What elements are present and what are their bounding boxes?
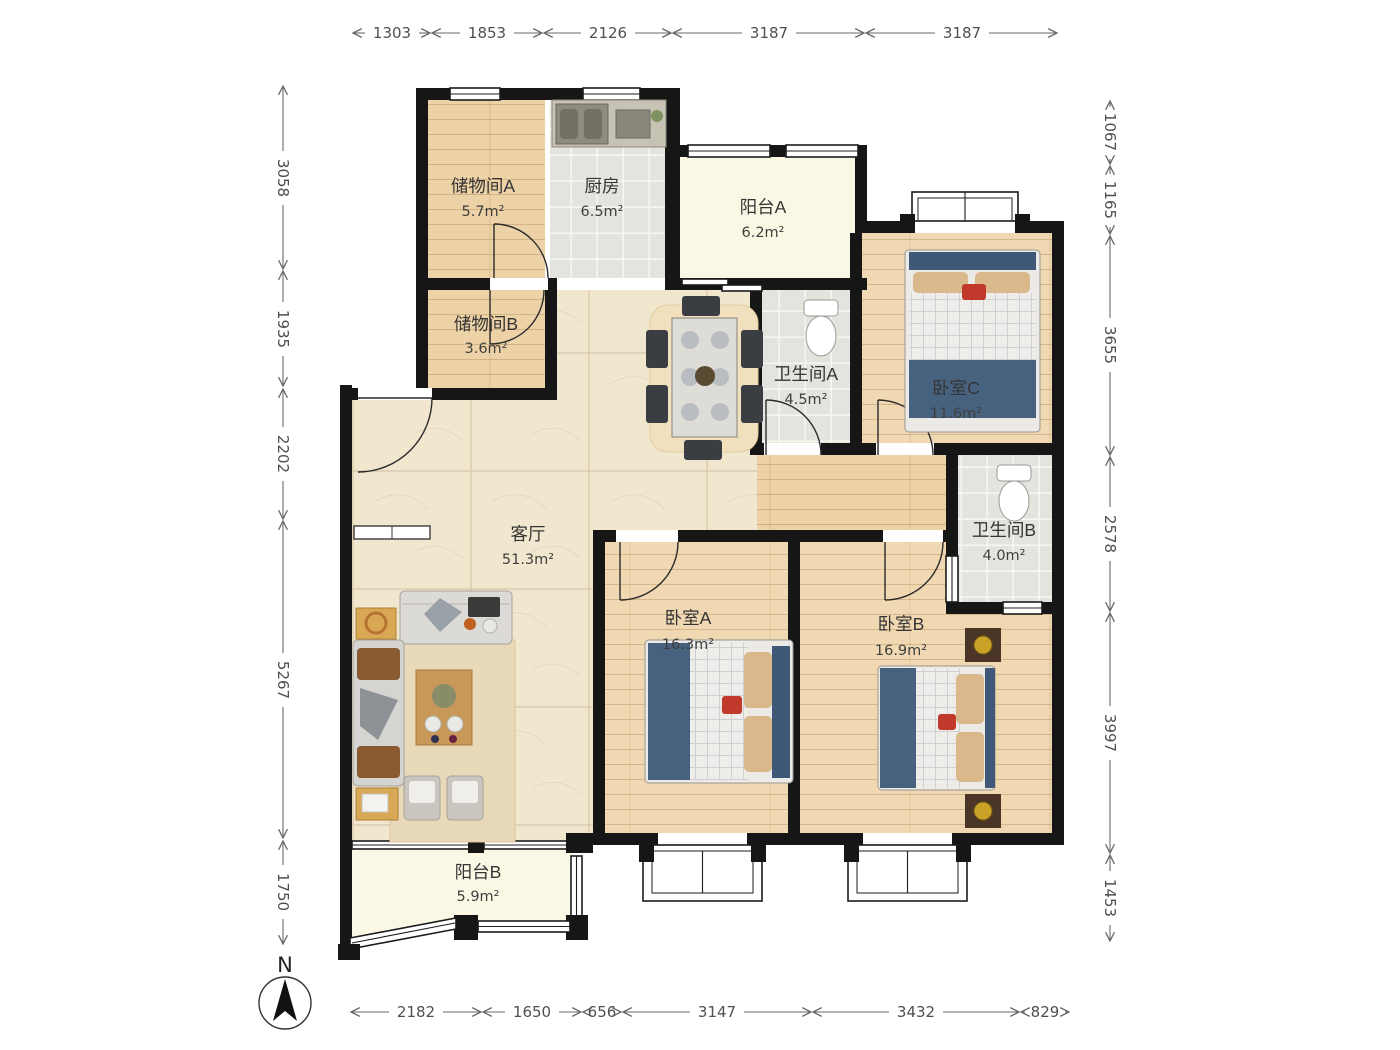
- floor-corridor-marble-texture: [605, 455, 757, 530]
- dimension-bottom: 2182 1650 656 3147 3432 829: [351, 1003, 1069, 1021]
- label-kitchen: 厨房: [585, 176, 620, 196]
- dim-bottom-3: 3147: [698, 1003, 736, 1021]
- label-bedroom-c: 卧室C: [932, 378, 980, 398]
- dining-chair: [646, 385, 668, 423]
- toilet-bath-b: [997, 465, 1031, 521]
- dim-top-1: 1853: [468, 24, 506, 42]
- opening-bedroom-c: [876, 443, 934, 455]
- label-bedroom-a: 卧室A: [665, 608, 712, 628]
- dimension-left: 3058 1935 2202 5267 1750: [274, 86, 292, 944]
- wall-left-outer: [340, 385, 352, 845]
- area-storage-a: 5.7m²: [462, 204, 505, 220]
- bay-window-bedroom-a: [639, 833, 766, 901]
- dining-set: [646, 296, 763, 460]
- wall-living-bedroom-a: [593, 530, 605, 845]
- dim-right-3: 2578: [1101, 515, 1119, 553]
- dim-bottom-1: 1650: [513, 1003, 551, 1021]
- compass: N: [259, 953, 311, 1029]
- entry-console: [354, 526, 430, 539]
- area-bath-b: 4.0m²: [983, 548, 1026, 564]
- label-storage-a: 储物间A: [451, 176, 515, 196]
- dim-right-2: 3655: [1101, 326, 1119, 364]
- sofa-tray: [468, 597, 500, 617]
- dim-bottom-5: 829: [1031, 1003, 1060, 1021]
- floor-storage-b-texture: [428, 290, 545, 390]
- wall-bedrooms-bottom: [570, 833, 1064, 845]
- toilet-bath-a: [804, 300, 838, 356]
- wall-storage-left: [416, 88, 428, 400]
- wall-storage-b-right: [545, 278, 557, 400]
- dim-top-0: 1303: [373, 24, 411, 42]
- bay-window-bedroom-b: [844, 833, 971, 901]
- dim-right-5: 1453: [1101, 879, 1119, 917]
- compass-north-label: N: [277, 953, 293, 977]
- label-bedroom-b: 卧室B: [878, 614, 925, 634]
- dimension-top: 1303 1853 2126 3187 3187: [353, 24, 1057, 42]
- dimension-right: 1067 1165 3655 2578 3997 1453: [1101, 101, 1119, 941]
- window-balcony-a-1: [688, 145, 770, 157]
- dim-bottom-4: 3432: [897, 1003, 935, 1021]
- dim-left-1: 1935: [274, 310, 292, 348]
- opening-storage-doors: [490, 278, 548, 290]
- label-bath-a: 卫生间A: [774, 364, 838, 384]
- dining-chair: [646, 330, 668, 368]
- area-bedroom-c: 11.6m²: [930, 406, 982, 422]
- window-kitchen: [583, 88, 640, 100]
- dim-left-2: 2202: [274, 435, 292, 473]
- area-bedroom-a: 16.3m²: [662, 637, 714, 653]
- dim-left-3: 5267: [274, 661, 292, 699]
- area-living: 51.3m²: [502, 552, 554, 568]
- dim-right-4: 3997: [1101, 714, 1119, 752]
- area-kitchen: 6.5m²: [581, 204, 624, 220]
- window-storage-a: [450, 88, 500, 100]
- label-living: 客厅: [511, 524, 546, 544]
- dining-chair: [741, 330, 763, 368]
- bed-b-accent: [938, 714, 956, 730]
- label-bath-b: 卫生间B: [972, 520, 1036, 540]
- bay-window-bedroom-c: [900, 192, 1030, 233]
- bed-a-accent: [722, 696, 742, 714]
- dining-centerpiece: [695, 366, 715, 386]
- dim-top-3: 3187: [750, 24, 788, 42]
- dim-bottom-2: 656: [588, 1003, 617, 1021]
- dim-bottom-0: 2182: [397, 1003, 435, 1021]
- dining-chair: [741, 385, 763, 423]
- dim-right-0: 1067: [1101, 113, 1119, 151]
- floorplan-svg: 储物间A 5.7m² 厨房 6.5m² 阳台A 6.2m² 储物间B 3.6m²…: [0, 0, 1400, 1050]
- wall-bath-a-bedc: [850, 233, 862, 455]
- dim-left-4: 1750: [274, 873, 292, 911]
- dim-top-2: 2126: [589, 24, 627, 42]
- dim-top-4: 3187: [943, 24, 981, 42]
- sofa-cushion: [357, 648, 400, 680]
- door-threshold-bath-b: [1003, 602, 1042, 614]
- sink-bowl-2: [584, 109, 602, 139]
- area-balcony-a: 6.2m²: [742, 225, 785, 241]
- bed-bedroom-a: [645, 640, 793, 783]
- window-bath-b: [946, 556, 958, 602]
- dim-left-0: 3058: [274, 159, 292, 197]
- opening-kitchen: [557, 278, 665, 290]
- post-balcony-b-right-top: [566, 833, 593, 853]
- area-bedroom-b: 16.9m²: [875, 643, 927, 659]
- floorplan-canvas: 储物间A 5.7m² 厨房 6.5m² 阳台A 6.2m² 储物间B 3.6m²…: [0, 0, 1400, 1050]
- floor-balcony-a: [677, 157, 855, 278]
- sink-bowl-1: [560, 109, 578, 139]
- kitchen-plant: [651, 110, 663, 122]
- opening-bedroom-b: [883, 530, 943, 542]
- compass-needle-icon: [273, 979, 297, 1021]
- wall-kitchen-right: [665, 100, 680, 290]
- floor-corridor-wood-texture: [757, 455, 946, 530]
- dining-chair: [682, 296, 720, 316]
- bed-c-accent: [962, 284, 986, 300]
- opening-bedroom-a: [616, 530, 678, 542]
- dining-chair: [684, 440, 722, 460]
- sofa-cushion: [357, 746, 400, 778]
- area-bath-a: 4.5m²: [785, 392, 828, 408]
- wall-right-outer: [1052, 221, 1064, 845]
- label-balcony-a: 阳台A: [740, 197, 787, 217]
- kitchen-counter: [552, 100, 666, 147]
- area-balcony-b: 5.9m²: [457, 889, 500, 905]
- cooktop: [616, 110, 650, 138]
- window-balcony-a-2: [786, 145, 858, 157]
- bed-bedroom-c: [905, 250, 1040, 432]
- opening-bath-a: [764, 443, 821, 455]
- wall-bath-b-left: [946, 455, 958, 558]
- book: [362, 794, 388, 812]
- label-storage-b: 储物间B: [454, 314, 518, 334]
- living-room-set: [353, 591, 515, 842]
- dim-right-1: 1165: [1101, 181, 1119, 219]
- label-balcony-b: 阳台B: [455, 862, 502, 882]
- table-plant: [432, 684, 456, 708]
- wall-balcony-a-right: [855, 145, 867, 233]
- area-storage-b: 3.6m²: [465, 341, 508, 357]
